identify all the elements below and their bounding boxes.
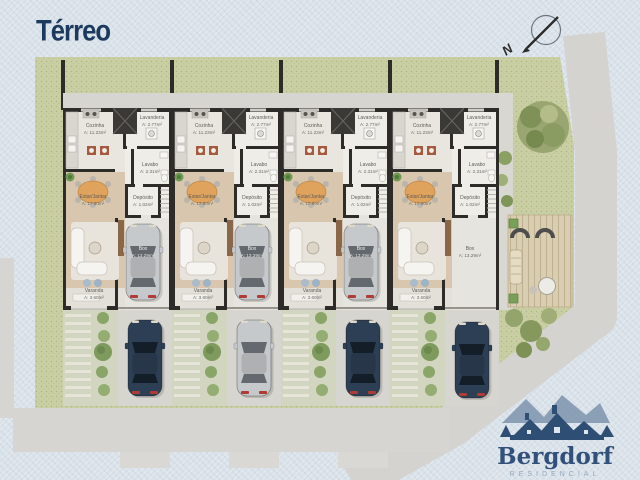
svg-text:A: 11.23m²: A: 11.23m² — [411, 130, 434, 135]
varanda-edge — [398, 309, 434, 310]
plant-icon — [393, 173, 402, 182]
deck-stool-icon — [529, 286, 537, 294]
coffee-table-icon — [416, 242, 428, 254]
compass-arrow-icon — [522, 47, 530, 53]
plant-icon — [175, 173, 184, 182]
varanda-edge — [289, 309, 325, 310]
back-walkway — [281, 93, 390, 108]
sidewalk — [13, 408, 449, 468]
logo-subtitle: RESIDENCIAL — [476, 471, 634, 478]
stove-icon — [83, 110, 99, 118]
sideboard-icon — [445, 220, 451, 256]
hedge-strip — [63, 310, 118, 406]
bergdorf-logo-graphic — [480, 389, 630, 443]
lounger-icon — [510, 250, 522, 284]
hedge-strip — [390, 310, 445, 406]
svg-text:Lavabo: Lavabo — [360, 162, 377, 168]
house-window-icon — [554, 427, 560, 433]
laundry-window — [141, 109, 157, 112]
back-walkway — [172, 93, 281, 108]
kitchen-counter-icon — [66, 112, 78, 168]
back-walkway — [390, 93, 499, 108]
plant-icon — [66, 173, 75, 182]
svg-text:Cozinha: Cozinha — [86, 123, 105, 129]
kitchen-counter-icon — [175, 112, 187, 168]
driveway-unit-1-car — [125, 320, 165, 398]
washer-icon — [255, 128, 266, 139]
left-path — [0, 258, 14, 418]
svg-text:A: 17.60m²: A: 17.60m² — [300, 201, 323, 206]
lavabo-door-gap — [462, 184, 470, 187]
svg-text:A: 13.29m²: A: 13.29m² — [459, 253, 482, 258]
hedge-strip — [281, 310, 336, 406]
svg-text:Cozinha: Cozinha — [195, 123, 214, 129]
svg-text:Varanda: Varanda — [303, 288, 322, 294]
kitchen-counter-icon — [284, 112, 296, 168]
svg-text:A: 3.60m²: A: 3.60m² — [84, 295, 104, 300]
svg-text:A: 2.31m²: A: 2.31m² — [467, 169, 487, 174]
svg-text:Estar/Jantar: Estar/Jantar — [80, 194, 107, 200]
north-compass: N — [499, 16, 560, 59]
svg-text:A: 2.77m²: A: 2.77m² — [360, 122, 380, 127]
laundry-window — [250, 109, 266, 112]
lavabo-door-gap — [244, 184, 252, 187]
svg-text:Cozinha: Cozinha — [304, 123, 323, 129]
garage-unit-2-car: BoxA: 13.29m² — [232, 224, 272, 302]
laundry-window — [359, 109, 375, 112]
svg-text:A: 3.60m²: A: 3.60m² — [193, 295, 213, 300]
shaft — [113, 108, 137, 134]
svg-text:A: 2.77m²: A: 2.77m² — [142, 122, 162, 127]
svg-text:A: 3.60m²: A: 3.60m² — [411, 295, 431, 300]
shaft — [440, 108, 464, 134]
page-title: Térreo — [36, 14, 110, 48]
driveway-unit-3-car — [343, 320, 383, 398]
svg-text:A: 2.31m²: A: 2.31m² — [140, 169, 160, 174]
laundry-door-gap — [127, 146, 137, 149]
bergdorf-logo: Bergdorf RESIDENCIAL — [476, 389, 634, 478]
svg-text:Depósito: Depósito — [133, 195, 153, 201]
svg-text:Varanda: Varanda — [85, 288, 104, 294]
svg-text:A: 13.29m²: A: 13.29m² — [132, 253, 155, 258]
deck-table-icon — [539, 278, 556, 295]
svg-text:A: 1.02m²: A: 1.02m² — [460, 202, 480, 207]
kitchen-counter-icon — [393, 112, 405, 168]
deposito-door-gap — [250, 215, 260, 218]
deposito-door-gap — [141, 215, 151, 218]
svg-text:A: 2.77m²: A: 2.77m² — [469, 122, 489, 127]
coffee-table-icon — [89, 242, 101, 254]
stove-icon — [410, 110, 426, 118]
lavabo-door-gap — [353, 184, 361, 187]
varanda-edge — [71, 309, 107, 310]
garage-floor — [452, 218, 497, 310]
svg-text:A: 1.02m²: A: 1.02m² — [133, 202, 153, 207]
svg-text:Box: Box — [248, 246, 257, 252]
shaft — [222, 108, 246, 134]
svg-text:Cozinha: Cozinha — [413, 123, 432, 129]
logo-name: Bergdorf — [476, 445, 634, 468]
compass-north-label: N — [499, 40, 516, 58]
washer-icon — [146, 128, 157, 139]
driveway-unit-2-car — [234, 320, 274, 398]
svg-text:A: 2.77m²: A: 2.77m² — [251, 122, 271, 127]
laundry-window — [468, 109, 484, 112]
stove-icon — [301, 110, 317, 118]
svg-text:Box: Box — [357, 246, 366, 252]
svg-text:A: 13.29m²: A: 13.29m² — [350, 253, 373, 258]
svg-text:Lavanderia: Lavanderia — [467, 115, 492, 121]
garage-unit-1-car: BoxA: 13.29m² — [123, 224, 163, 302]
deposito-door-gap — [359, 215, 369, 218]
svg-text:Lavanderia: Lavanderia — [249, 115, 274, 121]
svg-text:A: 17.60m²: A: 17.60m² — [409, 201, 432, 206]
stove-icon — [192, 110, 208, 118]
svg-text:A: 1.02m²: A: 1.02m² — [242, 202, 262, 207]
plant-icon — [284, 173, 293, 182]
garage-door — [118, 307, 169, 309]
svg-text:Estar/Jantar: Estar/Jantar — [189, 194, 216, 200]
laundry-door-gap — [345, 146, 355, 149]
svg-text:A: 2.31m²: A: 2.31m² — [249, 169, 269, 174]
washer-icon — [364, 128, 375, 139]
svg-text:A: 1.02m²: A: 1.02m² — [351, 202, 371, 207]
floor-plan-poster: Térreo — [0, 0, 640, 480]
coffee-table-icon — [198, 242, 210, 254]
svg-text:Estar/Jantar: Estar/Jantar — [407, 194, 434, 200]
svg-text:Varanda: Varanda — [194, 288, 213, 294]
svg-text:Box: Box — [466, 246, 475, 252]
svg-text:Lavabo: Lavabo — [469, 162, 486, 168]
svg-text:A: 17.60m²: A: 17.60m² — [191, 201, 214, 206]
svg-text:A: 17.60m²: A: 17.60m² — [82, 201, 105, 206]
svg-text:A: 3.60m²: A: 3.60m² — [302, 295, 322, 300]
coffee-table-icon — [307, 242, 319, 254]
svg-text:Varanda: Varanda — [412, 288, 431, 294]
washer-icon — [473, 128, 484, 139]
svg-text:A: 11.23m²: A: 11.23m² — [193, 130, 216, 135]
laundry-door-gap — [236, 146, 246, 149]
svg-text:A: 2.31m²: A: 2.31m² — [358, 169, 378, 174]
svg-text:A: 13.29m²: A: 13.29m² — [241, 253, 264, 258]
svg-text:Lavanderia: Lavanderia — [358, 115, 383, 121]
svg-text:Lavanderia: Lavanderia — [140, 115, 165, 121]
house-window-icon — [527, 430, 531, 434]
svg-text:Lavabo: Lavabo — [251, 162, 268, 168]
laundry-door-gap — [454, 146, 464, 149]
svg-text:Box: Box — [139, 246, 148, 252]
garage-door — [445, 307, 496, 309]
shaft — [331, 108, 355, 134]
deposito-door-gap — [468, 215, 478, 218]
varanda-edge — [180, 309, 216, 310]
house-window-icon — [584, 430, 588, 434]
svg-text:Depósito: Depósito — [242, 195, 262, 201]
svg-text:A: 11.23m²: A: 11.23m² — [84, 130, 107, 135]
deck — [508, 215, 572, 307]
lavabo-door-gap — [135, 184, 143, 187]
svg-text:Depósito: Depósito — [460, 195, 480, 201]
back-walkway — [63, 93, 172, 108]
svg-text:Estar/Jantar: Estar/Jantar — [298, 194, 325, 200]
garage-door — [227, 307, 278, 309]
garage-unit-3-car: BoxA: 13.29m² — [341, 224, 381, 302]
svg-text:Depósito: Depósito — [351, 195, 371, 201]
svg-text:A: 11.23m²: A: 11.23m² — [302, 130, 325, 135]
garage-door — [336, 307, 387, 309]
svg-text:Lavabo: Lavabo — [142, 162, 159, 168]
hedge-strip — [172, 310, 227, 406]
tree-large — [517, 101, 569, 153]
